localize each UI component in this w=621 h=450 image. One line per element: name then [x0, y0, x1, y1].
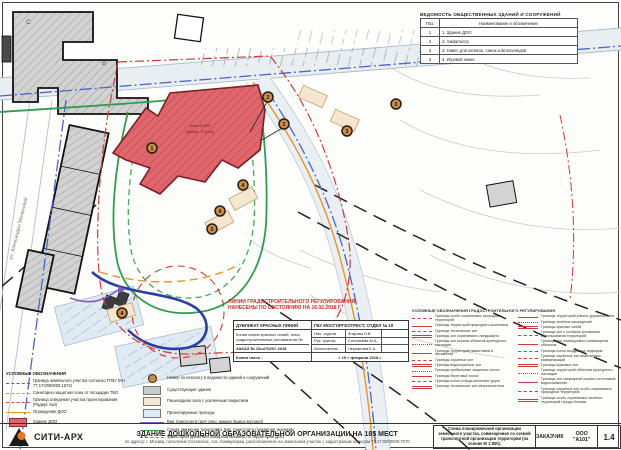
- col-header-pos: Поз.: [421, 19, 440, 28]
- legend-label: Границы охранных зон: [435, 359, 473, 363]
- stamp-signature-row: Нач. отделаЖарова Н.В.: [312, 330, 408, 338]
- pedestrian-zone-symbol: [140, 397, 164, 406]
- legend-label: Границы зон с особыми условиями использо…: [541, 331, 618, 339]
- mosgorgeotrest-stamp: ДУБЛИКАТ КРАСНЫХ ЛИНИЙ ГБУ МОСГОРГЕОТРЕС…: [233, 320, 409, 362]
- logo-triangle-icon: [8, 427, 30, 447]
- fence-symbol: [6, 412, 30, 413]
- legend-item: Граница отведения участка проектирования…: [6, 398, 132, 407]
- legend-left-title: УСЛОВНЫЕ ОБОЗНАЧЕНИЯ: [6, 372, 132, 377]
- legend-regulation-col-left: Границы особо охраняемых природных терри…: [412, 315, 512, 406]
- legend-item: Санитарно-защитная зона от площадки ТБО: [6, 391, 132, 396]
- stamp-signature-row: ИсполнительЧерканова Е.А.: [312, 345, 408, 352]
- legend-label: Границы охранных зон инженерных коммуник…: [541, 355, 618, 363]
- regulation-lines-note: ЛИНИИ ГРАДОСТРОИТЕЛЬНОГО РЕГУЛИРОВАНИЯ Н…: [228, 299, 368, 312]
- signature-cell: [382, 338, 408, 345]
- table-row: 44. Игровой навес: [421, 55, 578, 64]
- legend-item: Ограждение ДОО: [6, 410, 132, 415]
- stamp-signature-row: Рук. группыСоловьёва М.А.: [312, 338, 408, 346]
- legend-label: Границы красных линий: [541, 326, 581, 330]
- legend-label: Границы шумовых зон: [541, 364, 578, 368]
- legend-label: Границы зон планируемого размещения объе…: [541, 340, 618, 348]
- project-title: ЗДАНИЕ ДОШКОЛЬНОЙ ОБРАЗОВАТЕЛЬНОЙ ОРГАНИ…: [103, 431, 431, 438]
- footer-boxes: Схема планировочной организации земельно…: [433, 425, 621, 449]
- legend-label: Границы водоохранных зон: [435, 364, 481, 368]
- elevation-label2: (абсол. 179,40): [186, 129, 215, 134]
- legend-left: УСЛОВНЫЕ ОБОЗНАЧЕНИЯ Граница земельного …: [6, 372, 132, 429]
- person-name: Черканова Е.А.: [346, 345, 382, 352]
- legend-label: Границы полос отвода железных дорог: [435, 380, 500, 384]
- proposed-driveways-symbol: [140, 409, 164, 418]
- row-name: 3. Навес для колясок, санок и велосипедо…: [440, 46, 578, 55]
- role: Исполнитель: [312, 345, 346, 352]
- legend-label: Номер по каталогу в ведомости зданий и с…: [167, 376, 269, 381]
- marker-number: 4: [242, 183, 245, 189]
- legend-label: Границы зелёных насаждений: [541, 321, 592, 325]
- drawing-sheet: отм ±0.000 (абсол. 179,40) 1 2 2 3 3 4 4…: [0, 0, 621, 450]
- col-header-name: Наименование и обозначение: [440, 19, 578, 28]
- stamp-date: « 19 » февраля 2018 г.: [312, 353, 408, 361]
- legend-label: Границы зон охраняемого ландшафта: [435, 335, 499, 339]
- signature-cell: [382, 330, 408, 337]
- legend-label: Граница земельного участка согласно ГПЗУ…: [33, 379, 132, 388]
- logo-text: СИТИ-АРХ: [34, 432, 83, 442]
- legend-regulation-col-right: Границы территорий улично-дорожной сети …: [518, 315, 618, 406]
- project-address: по адресу: г. Москва, поселение Сосенско…: [103, 439, 431, 444]
- title-bar: СИТИ-АРХ ЗДАНИЕ ДОШКОЛЬНОЙ ОБРАЗОВАТЕЛЬН…: [0, 424, 621, 450]
- customer-box: ЗАКАЗЧИК ООО "А101": [536, 426, 598, 448]
- row-name: 1. Здание ДОО: [440, 28, 578, 37]
- signature-cell: [382, 345, 408, 352]
- stamp-copy: Копия часть -: [234, 353, 312, 361]
- design-boundary-symbol: [6, 402, 30, 403]
- building-letter-b: В: [102, 61, 106, 67]
- legend-label: Границы территорий природного комплекса: [435, 324, 508, 328]
- legend-label: Границы технических зон метрополитена: [435, 385, 504, 389]
- person-name: Соловьёва М.А.: [346, 338, 382, 345]
- marker-number: 3: [211, 227, 214, 233]
- row-name: 2. Амфитеатр: [440, 37, 578, 46]
- legend-item: Проектируемые проезды: [140, 409, 332, 418]
- legend-label: Существующие здания: [167, 388, 211, 393]
- elevation-label: отм ±0.000: [190, 123, 211, 128]
- legend-label: Санитарно-защитная зона от площадки ТБО: [33, 391, 118, 396]
- role: Рук. группы: [312, 338, 346, 345]
- marker-number: 4: [219, 209, 222, 215]
- legend-label: Границы охранных зон особо охраняемых пр…: [541, 388, 618, 396]
- parking-hatch-top2: [290, 30, 420, 44]
- buildings-table-title: ВЕДОМОСТЬ ОБЩЕСТВЕННЫХ ЗДАНИЙ И СООРУЖЕН…: [420, 12, 578, 17]
- stamp-note: Копии писем красных линий, иных градостр…: [236, 332, 309, 342]
- legend-item: Граница земельного участка согласно ГПЗУ…: [6, 379, 132, 388]
- marker-number: 3: [346, 129, 349, 135]
- row-pos: 2: [421, 37, 440, 46]
- legend-label: Границы полос воздушных подходов: [541, 350, 602, 354]
- row-pos: 1: [421, 28, 440, 37]
- stamp-org: ГБУ МОСГОРГЕОТРЕСТ, ОТДЕЛ № 10: [312, 321, 408, 329]
- marker-number: 2: [267, 95, 270, 101]
- legend-label: Ограждение ДОО: [33, 410, 67, 415]
- company-logo: СИТИ-АРХ: [8, 427, 103, 447]
- row-pos: 4: [421, 55, 440, 64]
- legend-regulation: УСЛОВНЫЕ ОБОЗНАЧЕНИЯ ГРАДОСТРОИТЕЛЬНОГО …: [412, 309, 618, 406]
- marker-number: 4: [121, 311, 124, 317]
- legend-label: Границы территорий объектов культурного …: [541, 369, 618, 377]
- legend-label: Пешеходная зона с усиленным покрытием: [167, 399, 248, 404]
- legend-label: Проектируемые проезды: [167, 411, 215, 416]
- legend-label: Границы зон охраны объектов культурного …: [435, 340, 512, 348]
- sheet-number: 1.4: [598, 426, 620, 448]
- marker-number: 2: [283, 122, 286, 128]
- legend-item: Существующие здания: [140, 386, 332, 395]
- legend-label: Границы зон санитарной охраны источников…: [541, 378, 618, 386]
- legend-label: Границы особо охраняемых зелёных террито…: [541, 397, 618, 405]
- customer-name: ООО "А101": [566, 431, 597, 443]
- buildings-table-block: ВЕДОМОСТЬ ОБЩЕСТВЕННЫХ ЗДАНИЙ И СООРУЖЕН…: [420, 12, 578, 64]
- building-letter-c: С: [26, 19, 31, 26]
- legend-label: Границы особо охраняемых природных терри…: [435, 315, 512, 323]
- buildings-table: Поз. Наименование и обозначение 11. Здан…: [420, 18, 578, 64]
- legend-label: Граница отведения участка проектирования…: [33, 398, 132, 407]
- sanitary-zone-symbol: [6, 393, 30, 394]
- street-label: ул. Александры Монаховой: [7, 196, 29, 260]
- table-row: 33. Навес для колясок, санок и велосипед…: [421, 46, 578, 55]
- marker-number: 1: [151, 146, 154, 152]
- legend-label: Границы технических зон: [435, 330, 477, 334]
- marker-number: 3: [395, 102, 398, 108]
- legend-label: Границы береговых полос: [435, 375, 479, 379]
- stamp-order: ЗАКАЗ № 10ы/7б207-2018: [236, 344, 309, 351]
- legend-regulation-title: УСЛОВНЫЕ ОБОЗНАЧЕНИЯ ГРАДОСТРОИТЕЛЬНОГО …: [412, 309, 618, 313]
- legend-item: Номер по каталогу в ведомости зданий и с…: [140, 374, 332, 383]
- boundary-gpzu-symbol: [6, 383, 30, 384]
- table-row: 11. Здание ДОО: [421, 28, 578, 37]
- customer-label: ЗАКАЗЧИК: [536, 434, 564, 440]
- table-row: 22. Амфитеатр: [421, 37, 578, 46]
- note-line2: НАНЕСЕНЫ ПО СОСТОЯНИЮ НА 16.02.2018 Г.: [228, 305, 368, 311]
- legend-item: Пешеходная зона с усиленным покрытием: [140, 397, 332, 406]
- existing-buildings-symbol: [140, 386, 164, 395]
- scheme-name-box: Схема планировочной организации земельно…: [434, 426, 536, 448]
- row-pos: 3: [421, 46, 440, 55]
- project-title-block: ЗДАНИЕ ДОШКОЛЬНОЙ ОБРАЗОВАТЕЛЬНОЙ ОРГАНИ…: [103, 431, 431, 444]
- marker-symbol: [140, 374, 164, 383]
- person-name: Жарова Н.В.: [346, 330, 382, 337]
- stamp-duplicate-title: ДУБЛИКАТ КРАСНЫХ ЛИНИЙ: [234, 321, 312, 329]
- row-name: 4. Игровой навес: [440, 55, 578, 64]
- legend-label: Границы территорий улично-дорожной сети: [541, 315, 614, 319]
- legend-label: Границы территорий памятников и ансамбле…: [435, 350, 512, 358]
- legend-label: Границы прибрежных защитных полос: [435, 369, 500, 373]
- role: Нач. отдела: [312, 330, 346, 337]
